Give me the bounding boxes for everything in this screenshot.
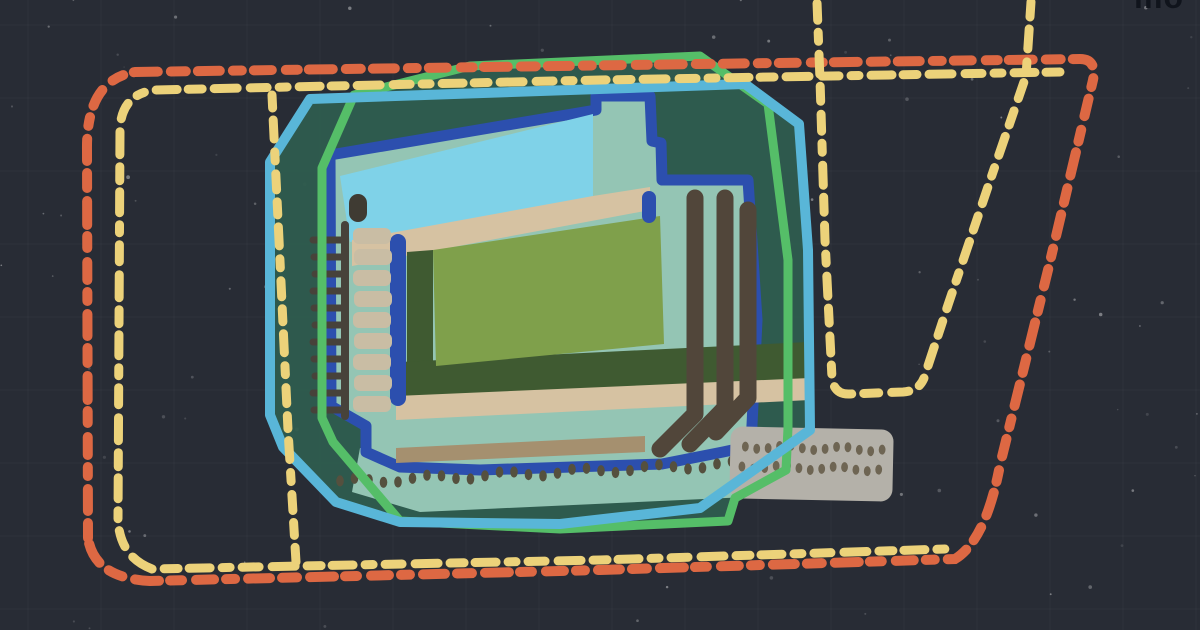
illustration-stage: mo: [0, 0, 1200, 630]
watermark-logo: mo: [1134, 0, 1184, 16]
stadium-map-illustration: [0, 0, 1200, 630]
terrace-blocks: [353, 228, 392, 412]
